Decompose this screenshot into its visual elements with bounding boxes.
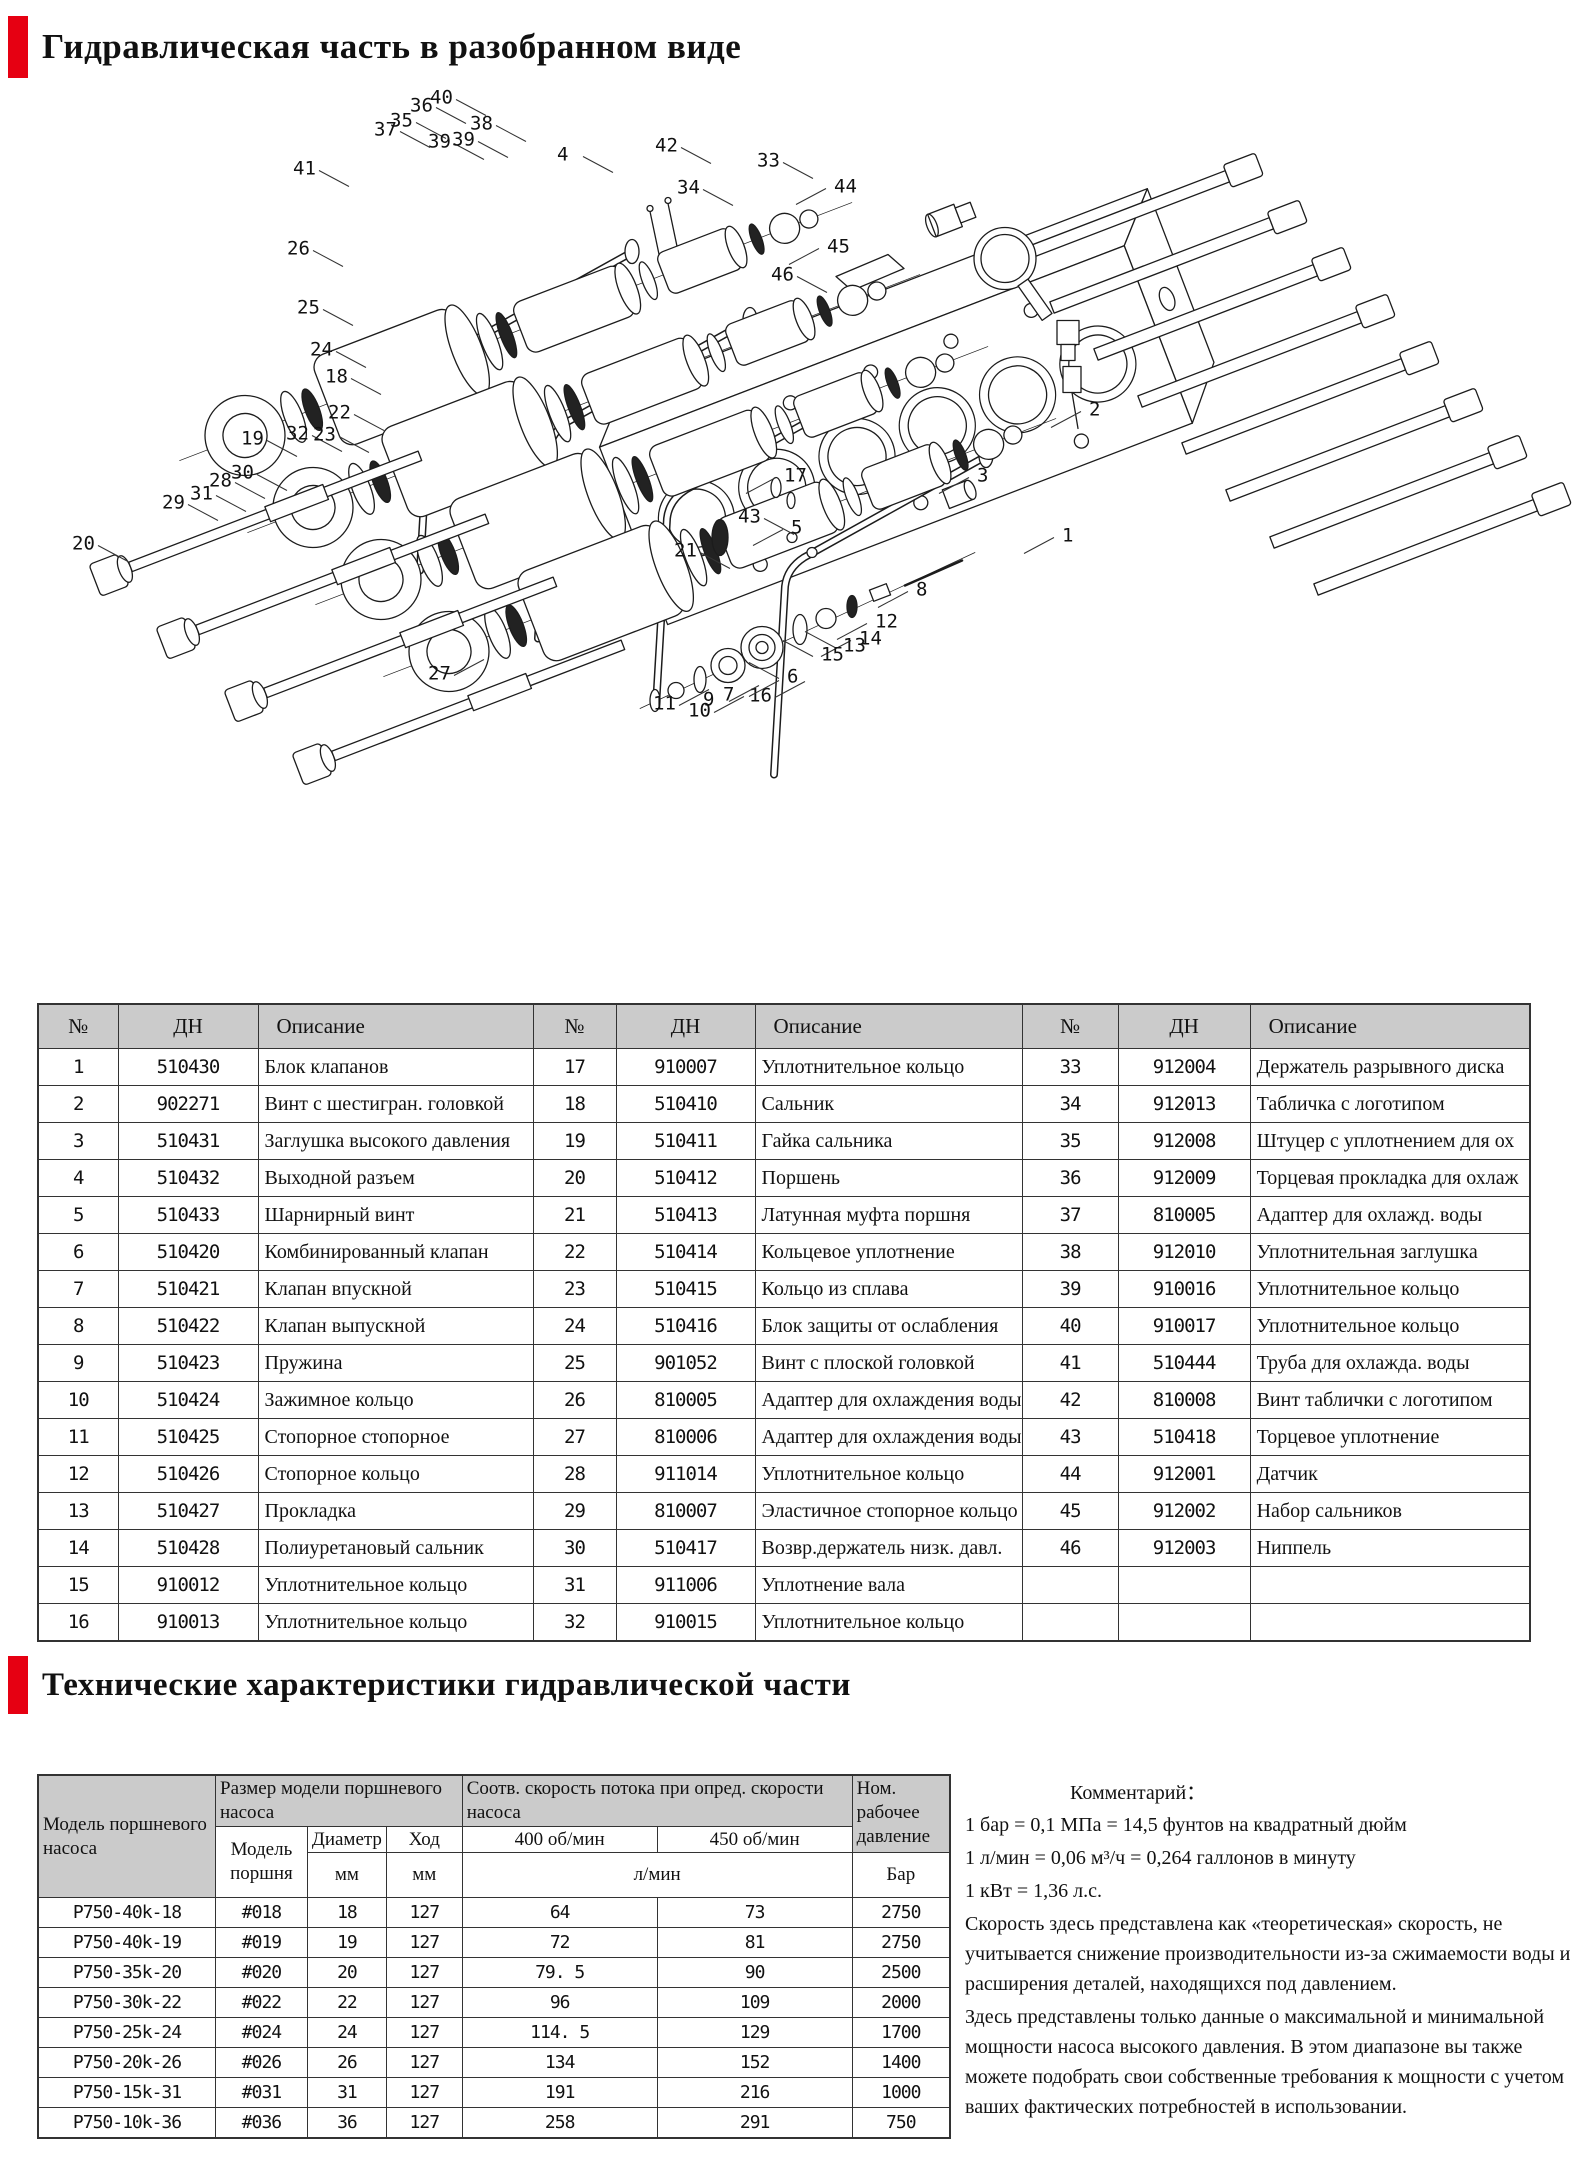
flow-450rpm: 90 [657, 1958, 852, 1988]
part-no [1022, 1604, 1118, 1642]
lmin-unit: л/мин [462, 1853, 852, 1898]
part-code: 510430 [118, 1049, 258, 1086]
part-desc: Ниппель [1250, 1530, 1530, 1567]
part-desc: Полиуретановый сальник [258, 1530, 533, 1567]
parts-row: 11510425Стопорное стопорное27810006Адапт… [38, 1419, 1530, 1456]
part-code: 510416 [616, 1308, 755, 1345]
spec-row: P750-25k-24#02424127114. 51291700 [38, 2018, 950, 2048]
part-desc: Заглушка высокого давления [258, 1123, 533, 1160]
callout-leader-line [796, 189, 826, 205]
diagram-callout-39: 39 [428, 131, 451, 153]
part-desc: Винт таблички с логотипом [1250, 1382, 1530, 1419]
part-code: 912013 [1118, 1086, 1250, 1123]
parts-row: 10510424Зажимное кольцо26810005Адаптер д… [38, 1382, 1530, 1419]
part-desc: Уплотнительное кольцо [755, 1049, 1022, 1086]
bar-unit: Бар [852, 1853, 950, 1898]
part-code: 510428 [118, 1530, 258, 1567]
pump-model: P750-40k-19 [38, 1928, 216, 1958]
flow-400rpm: 79. 5 [462, 1958, 657, 1988]
diagram-callout-22: 22 [328, 402, 351, 424]
comments-block: Комментарий： 1 бар = 0,1 МПа = 14,5 фунт… [965, 1774, 1578, 2139]
spec-header-row1: Модель поршневого насоса Размер модели п… [38, 1775, 950, 1826]
flow-450rpm: 109 [657, 1988, 852, 2018]
piston-model: #019 [216, 1928, 308, 1958]
flow-450rpm: 73 [657, 1898, 852, 1928]
part-desc: Шарнирный винт [258, 1197, 533, 1234]
part-code: 910016 [1118, 1271, 1250, 1308]
spec-row: P750-10k-36#03636127258291750 [38, 2108, 950, 2139]
part-desc: Штуцер с уплотнением для ох [1250, 1123, 1530, 1160]
part-desc: Кольцо из сплава [755, 1271, 1022, 1308]
part-code: 510432 [118, 1160, 258, 1197]
part-desc: Уплотнение вала [755, 1567, 1022, 1604]
part-desc: Клапан впускной [258, 1271, 533, 1308]
part-no: 6 [38, 1234, 118, 1271]
callout-leader-line [681, 148, 711, 164]
part-no: 11 [38, 1419, 118, 1456]
col-header-desc: Описание [755, 1004, 1022, 1049]
exploded-diagram: 3640353738393941442343344454626252418221… [0, 78, 1578, 1003]
diameter-header: Диаметр [307, 1826, 386, 1853]
diagram-callout-20: 20 [72, 533, 95, 555]
part-code: 510426 [118, 1456, 258, 1493]
part-no: 18 [533, 1086, 616, 1123]
part-code: 910015 [616, 1604, 755, 1642]
piston-model: #024 [216, 2018, 308, 2048]
part-desc: Комбинированный клапан [258, 1234, 533, 1271]
flow-450rpm: 81 [657, 1928, 852, 1958]
spec-row: P750-40k-19#0191912772812750 [38, 1928, 950, 1958]
diagram-callout-13: 13 [843, 635, 866, 657]
red-accent-bar [8, 16, 28, 78]
flow-450rpm: 216 [657, 2078, 852, 2108]
callout-leader-line [478, 142, 508, 158]
part-desc: Зажимное кольцо [258, 1382, 533, 1419]
part-code: 510415 [616, 1271, 755, 1308]
diagram-callout-18: 18 [325, 366, 348, 388]
part-no: 39 [1022, 1271, 1118, 1308]
diagram-callout-46: 46 [771, 264, 794, 286]
part-no: 28 [533, 1456, 616, 1493]
rpm400-header: 400 об/мин [462, 1826, 657, 1853]
diagram-callout-17: 17 [784, 465, 807, 487]
callout-leader-line [797, 277, 827, 293]
callout-leader-line [319, 171, 349, 187]
part-code: 810008 [1118, 1382, 1250, 1419]
callout-leader-line [323, 310, 353, 326]
flow-400rpm: 64 [462, 1898, 657, 1928]
diagram-callout-23: 23 [313, 424, 336, 446]
col-header-no: № [533, 1004, 616, 1049]
part-desc [1250, 1604, 1530, 1642]
parts-row: 15910012Уплотнительное кольцо31911006Упл… [38, 1567, 1530, 1604]
comment-line: 1 л/мин = 0,06 м³/ч = 0,264 галлонов в м… [965, 1843, 1578, 1873]
pump-model: P750-10k-36 [38, 2108, 216, 2139]
diagram-callout-31: 31 [190, 483, 213, 505]
callout-leader-line [188, 505, 218, 521]
part-no: 16 [38, 1604, 118, 1642]
section1-titlebar: Гидравлическая часть в разобранном виде [8, 16, 1578, 78]
part-no [1022, 1567, 1118, 1604]
stroke-mm: 127 [386, 2078, 462, 2108]
part-code: 810007 [616, 1493, 755, 1530]
col-header-no: № [1022, 1004, 1118, 1049]
part-code [1118, 1567, 1250, 1604]
diagram-callout-15: 15 [821, 644, 844, 666]
diagram-callout-16: 16 [749, 685, 772, 707]
pressure-bar: 750 [852, 2108, 950, 2139]
part-no: 35 [1022, 1123, 1118, 1160]
parts-row: 16910013Уплотнительное кольцо32910015Упл… [38, 1604, 1530, 1642]
part-desc: Поршень [755, 1160, 1022, 1197]
diagram-callout-26: 26 [287, 238, 310, 260]
flow-400rpm: 258 [462, 2108, 657, 2139]
diagram-callout-2: 2 [1089, 399, 1100, 421]
diagram-callout-34: 34 [677, 177, 700, 199]
flow-400rpm: 114. 5 [462, 2018, 657, 2048]
col-header-desc: Описание [1250, 1004, 1530, 1049]
part-code: 510427 [118, 1493, 258, 1530]
part-no: 44 [1022, 1456, 1118, 1493]
diagram-callout-1: 1 [1062, 525, 1073, 547]
part-code: 510410 [616, 1086, 755, 1123]
part-desc: Латунная муфта поршня [755, 1197, 1022, 1234]
part-code: 901052 [616, 1345, 755, 1382]
pump-model: P750-25k-24 [38, 2018, 216, 2048]
piston-model: #026 [216, 2048, 308, 2078]
part-code [1118, 1604, 1250, 1642]
part-no: 15 [38, 1567, 118, 1604]
part-code: 912003 [1118, 1530, 1250, 1567]
pump-model: P750-35k-20 [38, 1958, 216, 1988]
diameter-mm: 26 [307, 2048, 386, 2078]
piston-model-header: Модель поршня [216, 1826, 308, 1898]
flow-400rpm: 134 [462, 2048, 657, 2078]
diagram-callout-3: 3 [977, 465, 988, 487]
part-no: 30 [533, 1530, 616, 1567]
part-no: 45 [1022, 1493, 1118, 1530]
part-code: 810005 [1118, 1197, 1250, 1234]
part-no: 12 [38, 1456, 118, 1493]
part-code: 911014 [616, 1456, 755, 1493]
part-code: 510423 [118, 1345, 258, 1382]
part-no: 33 [1022, 1049, 1118, 1086]
parts-row: 14510428Полиуретановый сальник30510417Во… [38, 1530, 1530, 1567]
flow-group-header: Соотв. скорость потока при опред. скорос… [462, 1775, 852, 1826]
callout-leader-line [703, 190, 733, 206]
diagram-callout-42: 42 [655, 135, 678, 157]
part-desc: Кольцевое уплотнение [755, 1234, 1022, 1271]
flow-450rpm: 291 [657, 2108, 852, 2139]
part-desc: Уплотнительное кольцо [755, 1456, 1022, 1493]
part-no: 23 [533, 1271, 616, 1308]
callout-leader-line [583, 157, 613, 173]
pressure-bar: 2750 [852, 1898, 950, 1928]
part-desc: Клапан выпускной [258, 1308, 533, 1345]
part-code: 810006 [616, 1419, 755, 1456]
spec-row: P750-15k-31#031311271912161000 [38, 2078, 950, 2108]
diagram-callout-45: 45 [827, 236, 850, 258]
col-header-dn: ДН [1118, 1004, 1250, 1049]
comment-line: Скорость здесь представлена как «теорети… [965, 1909, 1578, 1999]
parts-row: 1510430Блок клапанов17910007Уплотнительн… [38, 1049, 1530, 1086]
diameter-mm: 22 [307, 1988, 386, 2018]
part-no: 24 [533, 1308, 616, 1345]
col-header-dn: ДН [118, 1004, 258, 1049]
comment-line: 1 бар = 0,1 МПа = 14,5 фунтов на квадрат… [965, 1810, 1578, 1840]
spec-row: P750-35k-20#0202012779. 5902500 [38, 1958, 950, 1988]
spec-title: Технические характеристики гидравлическо… [42, 1667, 851, 1704]
part-no: 36 [1022, 1160, 1118, 1197]
part-code: 912004 [1118, 1049, 1250, 1086]
parts-row: 4510432Выходной разъем20510412Поршень369… [38, 1160, 1530, 1197]
callout-leader-line [436, 108, 466, 124]
spec-row: P750-20k-26#026261271341521400 [38, 2048, 950, 2078]
part-code: 510422 [118, 1308, 258, 1345]
part-code: 910007 [616, 1049, 755, 1086]
piston-model: #020 [216, 1958, 308, 1988]
part-desc: Винт с плоской головкой [755, 1345, 1022, 1382]
part-desc: Возвр.держатель низк. давл. [755, 1530, 1022, 1567]
part-code: 912002 [1118, 1493, 1250, 1530]
diagram-callout-33: 33 [757, 150, 780, 172]
size-group-header: Размер модели поршневого насоса [216, 1775, 463, 1826]
diagram-callout-24: 24 [310, 339, 333, 361]
part-desc: Труба для охлажда. воды [1250, 1345, 1530, 1382]
part-code: 902271 [118, 1086, 258, 1123]
pressure-bar: 2500 [852, 1958, 950, 1988]
parts-row: 5510433Шарнирный винт21510413Латунная му… [38, 1197, 1530, 1234]
stroke-mm: 127 [386, 2108, 462, 2139]
spec-row: P750-30k-22#02222127961092000 [38, 1988, 950, 2018]
part-code: 510431 [118, 1123, 258, 1160]
part-no: 42 [1022, 1382, 1118, 1419]
part-no: 32 [533, 1604, 616, 1642]
part-desc: Уплотнительное кольцо [755, 1604, 1022, 1642]
part-no: 29 [533, 1493, 616, 1530]
part-desc: Гайка сальника [755, 1123, 1022, 1160]
mm-unit: мм [307, 1853, 386, 1898]
comments-label: Комментарий： [965, 1778, 1578, 1808]
part-no: 22 [533, 1234, 616, 1271]
stroke-mm: 127 [386, 1898, 462, 1928]
part-no: 31 [533, 1567, 616, 1604]
part-no: 46 [1022, 1530, 1118, 1567]
part-no: 26 [533, 1382, 616, 1419]
spec-section: Модель поршневого насоса Размер модели п… [37, 1774, 1578, 2139]
section2-titlebar: Технические характеристики гидравлическо… [8, 1656, 1578, 1714]
part-no: 7 [38, 1271, 118, 1308]
diameter-mm: 18 [307, 1898, 386, 1928]
diameter-mm: 36 [307, 2108, 386, 2139]
parts-header-row: № ДН Описание № ДН Описание № ДН Описани… [38, 1004, 1530, 1049]
piston-model: #018 [216, 1898, 308, 1928]
part-code: 510421 [118, 1271, 258, 1308]
part-code: 510433 [118, 1197, 258, 1234]
parts-row: 12510426Стопорное кольцо28911014Уплотнит… [38, 1456, 1530, 1493]
parts-row: 3510431Заглушка высокого давления1951041… [38, 1123, 1530, 1160]
parts-row: 2902271Винт с шестигран. головкой1851041… [38, 1086, 1530, 1123]
mm-unit: мм [386, 1853, 462, 1898]
part-no: 13 [38, 1493, 118, 1530]
part-no: 4 [38, 1160, 118, 1197]
pressure-bar: 1700 [852, 2018, 950, 2048]
part-no: 41 [1022, 1345, 1118, 1382]
piston-model: #022 [216, 1988, 308, 2018]
diagram-callout-5: 5 [791, 517, 802, 539]
part-no: 1 [38, 1049, 118, 1086]
part-code: 912009 [1118, 1160, 1250, 1197]
comment-line: 1 кВт = 1,36 л.с. [965, 1876, 1578, 1906]
callout-leader-line [789, 249, 819, 265]
part-code: 510425 [118, 1419, 258, 1456]
part-no: 8 [38, 1308, 118, 1345]
part-code: 510413 [616, 1197, 755, 1234]
part-code: 510418 [1118, 1419, 1250, 1456]
part-code: 910017 [1118, 1308, 1250, 1345]
stroke-header: Ход [386, 1826, 462, 1853]
part-no: 21 [533, 1197, 616, 1234]
callout-leader-line [400, 132, 430, 148]
part-no: 14 [38, 1530, 118, 1567]
part-desc: Торцевая прокладка для охлаж [1250, 1160, 1530, 1197]
part-no: 40 [1022, 1308, 1118, 1345]
part-desc: Уплотнительное кольцо [1250, 1308, 1530, 1345]
pump-model: P750-30k-22 [38, 1988, 216, 2018]
piston-model: #036 [216, 2108, 308, 2139]
diagram-callout-39: 39 [452, 129, 475, 151]
part-no: 25 [533, 1345, 616, 1382]
part-desc: Торцевое уплотнение [1250, 1419, 1530, 1456]
part-desc: Блок защиты от ослабления [755, 1308, 1022, 1345]
part-desc: Винт с шестигран. головкой [258, 1086, 533, 1123]
part-no: 10 [38, 1382, 118, 1419]
part-code: 510444 [1118, 1345, 1250, 1382]
parts-row: 9510423Пружина25901052Винт с плоской гол… [38, 1345, 1530, 1382]
diameter-mm: 20 [307, 1958, 386, 1988]
part-code: 510417 [616, 1530, 755, 1567]
spec-col1-header: Модель поршневого насоса [38, 1775, 216, 1898]
callout-leader-line [783, 163, 813, 179]
part-code: 510411 [616, 1123, 755, 1160]
part-desc: Пружина [258, 1345, 533, 1382]
stroke-mm: 127 [386, 1958, 462, 1988]
parts-row: 6510420Комбинированный клапан22510414Кол… [38, 1234, 1530, 1271]
pressure-bar: 2000 [852, 1988, 950, 2018]
spec-table: Модель поршневого насоса Размер модели п… [37, 1774, 951, 2139]
part-code: 912008 [1118, 1123, 1250, 1160]
diagram-callout-8: 8 [916, 579, 927, 601]
part-code: 910013 [118, 1604, 258, 1642]
diagram-callout-29: 29 [162, 492, 185, 514]
part-desc: Табличка с логотипом [1250, 1086, 1530, 1123]
callout-leader-line [1024, 538, 1054, 554]
spec-row: P750-40k-18#0181812764732750 [38, 1898, 950, 1928]
part-desc: Адаптер для охлажд. воды [1250, 1197, 1530, 1234]
diagram-callout-30: 30 [231, 462, 254, 484]
callout-leader-line [235, 483, 265, 499]
flow-400rpm: 191 [462, 2078, 657, 2108]
diagram-callout-6: 6 [787, 666, 798, 688]
part-code: 510424 [118, 1382, 258, 1419]
part-no: 43 [1022, 1419, 1118, 1456]
part-desc: Уплотнительное кольцо [258, 1567, 533, 1604]
part-code: 911006 [616, 1567, 755, 1604]
part-no: 38 [1022, 1234, 1118, 1271]
part-desc [1250, 1567, 1530, 1604]
diagram-callout-37: 37 [374, 119, 397, 141]
flow-450rpm: 129 [657, 2018, 852, 2048]
flow-400rpm: 72 [462, 1928, 657, 1958]
part-no: 19 [533, 1123, 616, 1160]
part-desc: Прокладка [258, 1493, 533, 1530]
callout-leader-line [496, 126, 526, 142]
part-desc: Выходной разъем [258, 1160, 533, 1197]
part-code: 810005 [616, 1382, 755, 1419]
diagram-callout-41: 41 [293, 158, 316, 180]
pump-model: P750-40k-18 [38, 1898, 216, 1928]
diagram-callout-4: 4 [557, 144, 568, 166]
stroke-mm: 127 [386, 1988, 462, 2018]
part-desc: Сальник [755, 1086, 1022, 1123]
diagram-callout-44: 44 [834, 176, 857, 198]
stroke-mm: 127 [386, 2048, 462, 2078]
part-code: 510420 [118, 1234, 258, 1271]
piston-model: #031 [216, 2078, 308, 2108]
diagram-callout-27: 27 [428, 663, 451, 685]
red-accent-bar [8, 1656, 28, 1714]
part-desc: Уплотнительное кольцо [258, 1604, 533, 1642]
diameter-mm: 31 [307, 2078, 386, 2108]
pressure-bar: 2750 [852, 1928, 950, 1958]
diagram-callout-21: 21 [674, 540, 697, 562]
part-desc: Эластичное стопорное кольцо [755, 1493, 1022, 1530]
part-no: 37 [1022, 1197, 1118, 1234]
part-desc: Стопорное стопорное [258, 1419, 533, 1456]
callout-leader-line [313, 251, 343, 267]
col-header-no: № [38, 1004, 118, 1049]
pump-model: P750-15k-31 [38, 2078, 216, 2108]
page-title: Гидравлическая часть в разобранном виде [42, 27, 741, 67]
parts-row: 8510422Клапан выпускной24510416Блок защи… [38, 1308, 1530, 1345]
diagram-callout-11: 11 [653, 693, 676, 715]
part-code: 510414 [616, 1234, 755, 1271]
diagram-callout-43: 43 [738, 506, 761, 528]
part-no: 20 [533, 1160, 616, 1197]
comment-line: Здесь представлены только данные о макси… [965, 2002, 1578, 2122]
part-no: 3 [38, 1123, 118, 1160]
part-desc: Адаптер для охлаждения воды [755, 1382, 1022, 1419]
parts-row: 7510421Клапан впускной23510415Кольцо из … [38, 1271, 1530, 1308]
pump-model: P750-20k-26 [38, 2048, 216, 2078]
stroke-mm: 127 [386, 2018, 462, 2048]
diagram-callout-19: 19 [241, 428, 264, 450]
part-no: 9 [38, 1345, 118, 1382]
part-desc: Блок клапанов [258, 1049, 533, 1086]
part-code: 912001 [1118, 1456, 1250, 1493]
pressure-header: Ном. рабочее давление [852, 1775, 950, 1853]
part-desc: Набор сальников [1250, 1493, 1530, 1530]
parts-row: 13510427Прокладка29810007Эластичное стоп… [38, 1493, 1530, 1530]
exploded-diagram-area: 3640353738393941442343344454626252418221… [0, 78, 1578, 1003]
part-desc: Уплотнительная заглушка [1250, 1234, 1530, 1271]
diameter-mm: 19 [307, 1928, 386, 1958]
part-no: 34 [1022, 1086, 1118, 1123]
part-no: 5 [38, 1197, 118, 1234]
part-desc: Датчик [1250, 1456, 1530, 1493]
part-code: 910012 [118, 1567, 258, 1604]
pressure-bar: 1000 [852, 2078, 950, 2108]
